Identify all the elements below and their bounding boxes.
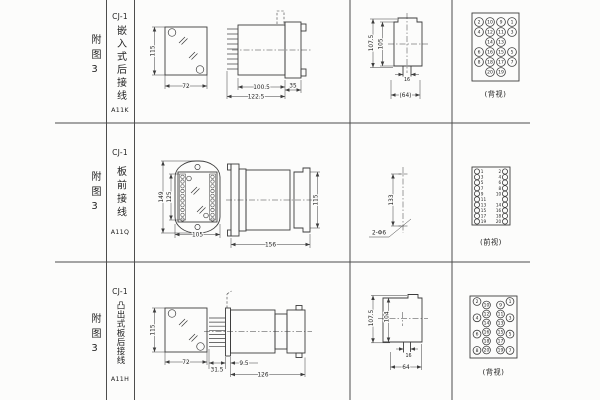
row3-cutout-view: 107.5 104 16 64 [369,295,428,372]
terminal-number: 18 [496,214,502,219]
drawings-canvas: 115 72 100.5 35 122.5 [0,0,600,400]
terminal-number: 2 [499,169,502,174]
terminal-number: 12 [487,30,493,36]
dim-flange-width: 105 [192,233,203,239]
terminal-number: 15 [498,330,504,336]
terminal-number: 16 [487,50,493,56]
terminal-number: 2 [478,20,481,26]
terminal-number: 19 [481,219,487,224]
terminal-number: 20 [487,70,493,76]
row1-front-view: 115 72 [151,27,208,90]
terminal-number: 20 [496,219,502,224]
terminal-number: 8 [499,186,502,191]
terminal-number: 18 [484,339,490,345]
terminal-number: 8 [478,60,481,66]
terminal-number: 5 [481,180,484,185]
dim-slot-width: 16 [404,77,410,83]
dim-cutout-outer-height: 107.5 [369,309,375,326]
view-label-back: (背视) [485,90,507,99]
terminal-number: 18 [487,60,493,66]
dim-hole-pitch: 133 [389,194,395,205]
terminal-number: 11 [481,197,487,202]
manual-page: 附图3 附图3 附图3 CJ-1 嵌入式后接线 A11K CJ-1 板前接线 A… [0,0,600,400]
row2-drill-view: 133 2-Φ6 [369,167,411,237]
row2-terminal-view: 1 2 3 4 5 6 7 8 9 10 11 13 14 15 16 17 1… [472,167,510,247]
terminal-number: 4 [499,175,502,180]
row3-side-view: 31.5 9.5 126 [204,291,312,379]
row2-side-view: 156 115 [226,164,320,249]
terminal-number: 9 [500,20,503,26]
terminal-number: 17 [481,214,487,219]
terminal-number: 19 [498,348,504,354]
terminal-number: 20 [484,348,490,354]
terminal-number: 15 [498,50,504,56]
terminal-number: 11 [498,30,504,36]
dim-flange-height: 149 [159,191,165,202]
terminal-number: 11 [498,312,504,318]
dim-front-height: 115 [151,324,157,335]
terminal-number: 6 [476,332,479,338]
terminal-number: 7 [509,348,512,354]
dim-flange-depth: 35 [289,84,297,90]
terminal-number: 13 [498,321,504,327]
dim-front-width: 72 [182,84,190,90]
terminal-number: 9 [481,191,484,196]
terminal-number: 14 [487,40,493,46]
terminal-number: 3 [509,315,512,321]
terminal-number: 10 [496,191,502,196]
dim-body-length: 100.5 [253,85,270,91]
terminal-number: 3 [511,30,514,36]
terminal-number: 1 [481,169,484,174]
row3-front-view: 115 72 [151,308,208,366]
dim-pin-length: 31.5 [211,368,224,374]
terminal-number: 13 [481,202,487,207]
terminal-number: 10 [484,303,490,309]
dim-slot-span: (64) [400,93,412,99]
dim-body-length: 126 [257,373,268,379]
dim-cutout-outer-height: 107.5 [369,34,375,51]
terminal-number: 5 [511,50,514,56]
terminal-number: 9 [499,303,502,309]
dim-body-height: 115 [314,194,320,205]
terminal-number: 12 [484,312,490,318]
dim-terminal-strip-height: 125 [167,191,173,202]
terminal-number: 6 [478,50,481,56]
row2-front-view: 149 125 105 [159,161,220,239]
row1-side-view: 100.5 35 122.5 [227,11,312,101]
terminal-number: 16 [496,208,502,213]
terminal-number: 17 [498,60,504,66]
dim-cutout-inner-height: 104 [385,311,391,322]
dim-front-height: 115 [151,45,157,56]
terminal-number: 1 [511,20,514,26]
terminal-number: 4 [478,30,481,36]
terminal-number: 1 [509,299,512,305]
dim-slot-width: 16 [405,353,411,359]
terminal-number: 13 [498,40,504,46]
terminal-number: 7 [511,60,514,66]
view-label-front: (前视) [480,238,502,247]
terminal-number: 14 [484,321,490,327]
terminal-number: 8 [476,348,479,354]
dim-total-length: 122.5 [248,95,265,101]
dim-panel-offset: 9.5 [239,361,249,367]
dim-cutout-inner-height: 105 [379,38,385,49]
terminal-number: 6 [499,180,502,185]
dim-total-length: 156 [265,243,276,249]
terminal-number: 15 [481,208,487,213]
terminal-number: 10 [487,20,493,26]
terminal-number: 5 [509,332,512,338]
view-label-back: (背视) [483,368,505,377]
dim-slot-span: 64 [402,365,410,371]
terminal-number: 19 [498,70,504,76]
terminal-number: 14 [496,202,502,207]
dim-front-width: 72 [182,360,190,366]
row3-terminal-view: 2 4 6 8 10 12 14 16 18 20 9 11 13 15 17 … [470,296,517,377]
hole-spec-label: 2-Φ6 [372,231,386,237]
row1-terminal-view: 2 10 9 1 4 12 11 3 14 13 6 16 15 5 8 18 … [472,13,519,99]
terminal-number: 3 [481,175,484,180]
terminal-number: 7 [481,186,484,191]
terminal-number: 2 [476,299,479,305]
row1-cutout-view: 107.5 105 16 (64) [369,13,428,99]
terminal-number: 16 [484,330,490,336]
terminal-number: 17 [498,339,504,345]
terminal-number: 4 [476,315,479,321]
